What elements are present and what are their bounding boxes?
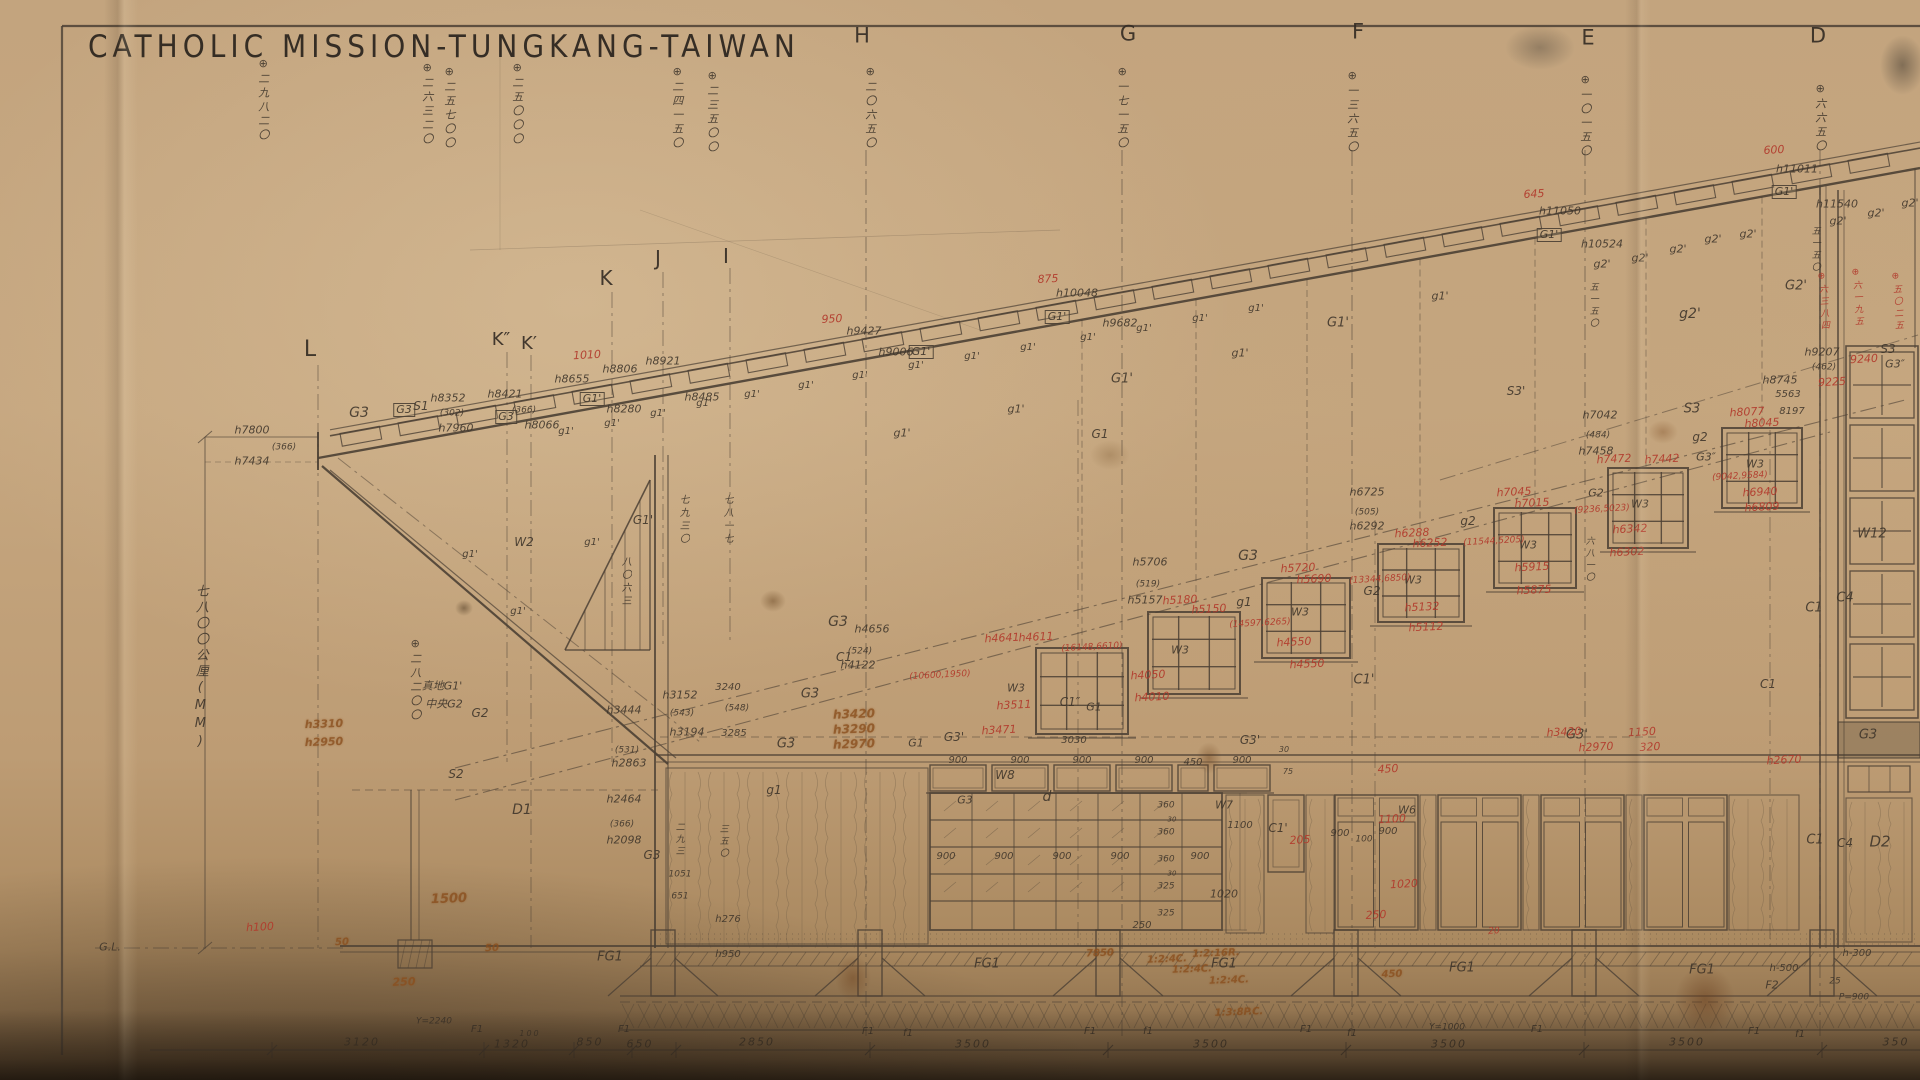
annotation-ink: h6725 [1350,487,1385,498]
annotation-ink: G3 [349,406,369,420]
annotation-ink: 75 [1283,768,1293,776]
annotation-ink: C1' [1354,674,1375,687]
annotation-red: 1150 [1628,726,1657,738]
annotation-ink: Y=1000 [1429,1024,1465,1033]
annotation-ink: h5157 [1128,595,1163,606]
annotation-ink: g1' [604,419,619,429]
annotation-red: h6809 [1744,501,1779,514]
annotation-ink: S3 [1684,403,1701,416]
annotation-ink: G1 [1086,702,1102,713]
annotation-brown: 1500 [431,892,468,906]
annotation-ink: h950 [715,950,740,960]
annotation-ink: h-500 [1769,964,1798,974]
annotation-red: 1020 [1390,878,1419,890]
annotation-ink: h11050 [1539,206,1581,217]
annotation-dim: 3500 [1193,1039,1229,1050]
annotation-ink: (462) [1812,364,1836,373]
annotation-ink: h8421 [488,389,523,400]
annotation-ink: D2 [1869,835,1890,850]
annotation-brown: 50 [485,944,499,954]
annotation-ink: C4 [1837,837,1853,849]
annotation-ink: h2098 [607,835,642,846]
annotation-ink: FG1 [597,951,623,964]
annotation-red: h6302 [1609,546,1644,559]
annotation-ink: ⊕二五七〇〇 [443,65,455,151]
annotation-ink: g2 [1692,431,1707,443]
annotation-ink: h9006 [879,347,914,358]
annotation-ink: 900 [1110,852,1129,862]
annotation-ink: g1' [650,409,665,419]
annotation-ink: h-300 [1842,949,1871,959]
annotation-ink: G1' [1327,317,1349,330]
annotation-ink: 360 [1157,856,1174,865]
annotation-ink: C1 [1806,834,1823,847]
annotation-ink: 900 [1232,756,1251,766]
annotation-dim: 650 [627,1039,654,1050]
annotation-ink: (366) [512,407,536,416]
annotation-ink: g1' [510,607,525,617]
annotation-ink: h10048 [1056,288,1098,299]
annotation-red: 875 [1037,273,1059,285]
annotation-ink: W8 [995,769,1015,781]
annotation-ink: G3' [1240,734,1260,746]
annotation-ink: g1' [1020,343,1035,353]
annotation-ink: (519) [1136,581,1160,590]
annotation-letter: K [599,268,612,288]
annotation-ink: W2 [514,536,534,548]
annotation-ink: g1' [462,550,477,560]
annotation-ink: h3444 [607,705,642,716]
annotation-ink: 450 [1183,758,1202,768]
annotation-ink: g1 [1236,596,1251,608]
annotation-ink: G1 [908,738,924,749]
drawing-title: CATHOLIC MISSION-TUNGKANG-TAIWAN [88,28,800,65]
annotation-ink: ⊕六六五〇 [1814,82,1826,154]
annotation-letter: G [1120,24,1136,45]
annotation-ink: g2' [1704,234,1721,245]
annotation-ink: h4656 [855,624,890,635]
annotation-red: 1010 [573,349,602,361]
annotation-red: h4641 [984,632,1019,645]
annotation-ink: 七八一七 [721,494,732,546]
annotation-ink: h8921 [646,356,681,367]
annotation-ink: g1' [908,361,923,371]
annotation-ink: G1' [1111,373,1133,386]
annotation-brown: 1:2:4C. [1209,975,1249,986]
annotation-red: 600 [1763,144,1785,156]
annotation-ink: 8197 [1779,407,1804,417]
annotation-red: 950 [821,313,843,325]
annotation-ink: Y=2240 [416,1018,452,1027]
annotation-ink: 325 [1157,883,1174,892]
annotation-red: h4010 [1134,691,1169,704]
annotation-ink: ⊕二九八二〇 [257,57,269,143]
annotation-ink: G2 [1364,585,1381,597]
annotation-box: G1' [1537,228,1562,242]
annotation-red: 645 [1523,188,1545,200]
annotation-ink: h3194 [670,727,705,738]
annotation-ink: h6292 [1350,521,1385,532]
annotation-red: h3471 [981,724,1016,737]
annotation-dim: 3500 [1431,1039,1467,1050]
annotation-ink: C1 [836,651,852,663]
annotation-brown: 7850 [1086,949,1114,960]
annotation-ink: G3 [1238,549,1258,563]
annotation-ink: ⊕二〇六五〇 [864,65,876,151]
annotation-ink: C4 [1836,592,1853,605]
annotation-ink: 30 [1168,817,1177,824]
annotation-ink: ⊕二四一五〇 [671,65,683,151]
annotation-red: h5132 [1404,601,1439,614]
annotation-red: h6252 [1412,537,1447,550]
annotation-ink: G3″ [1696,452,1716,463]
annotation-ink: G1 [1092,428,1109,440]
annotation-ink: g2' [1669,244,1686,255]
annotation-ink: h8655 [555,374,590,385]
annotation-ink: C1 [1760,678,1776,690]
annotation-ink: h276 [715,915,740,925]
annotation-ink: g1' [964,352,979,362]
annotation-ink: G1' [633,514,653,526]
annotation-ink: 中央G2 [425,699,463,710]
annotation-ink: g1 [766,784,781,796]
annotation-ink: S1 [413,400,428,412]
annotation-dim: 3500 [1669,1037,1705,1048]
annotation-ink: 360 [1157,829,1174,838]
annotation-ink: FG1 [1211,958,1237,971]
annotation-ink: 900 [1134,756,1153,766]
annotation-ink: G2 [472,707,489,719]
annotation-ink: h7042 [1583,410,1618,421]
annotation-red: h4550 [1289,658,1324,671]
annotation-ink: g2' [1901,198,1918,209]
annotation-red: h6940 [1742,486,1777,499]
annotation-ink: F1 [1084,1027,1096,1037]
annotation-ink: g1' [1080,333,1095,343]
annotation-ink: g2' [1867,208,1884,219]
annotation-ink: g2 [1460,515,1475,527]
annotation-ink: 3240 [715,683,740,693]
annotation-ink: F2 [1765,980,1778,991]
annotation-ink: 3285 [721,729,746,739]
annotation-red: 9225 [1818,376,1847,388]
annotation-red: h100 [246,921,275,933]
annotation-ink: F1 [1531,1025,1543,1035]
annotation-red: h5150 [1191,603,1226,616]
annotation-red: h4611 [1018,631,1053,644]
annotation-dim: 1320 [494,1039,530,1050]
annotation-ink: g2' [1829,216,1846,227]
annotation-ink: g2' [1631,253,1648,264]
annotation-ink: 七八〇〇公厘(MM) [193,584,207,752]
annotation-ink: W3 [1171,645,1189,656]
annotation-letter: D [1810,26,1826,47]
annotation-ink: f1 [903,1029,913,1039]
annotation-ink: f1 [1795,1030,1805,1040]
annotation-letter: L [304,339,316,361]
annotation-ink: G2 [1588,488,1604,499]
annotation-ink: h3152 [663,690,698,701]
annotation-ink: g1' [1136,324,1151,334]
annotation-ink: G3″ [1885,359,1905,370]
annotation-ink: G3 [644,849,661,861]
annotation-ink: 651 [671,893,688,902]
annotation-ink: 1051 [669,871,692,880]
annotation-ink: h9207 [1805,347,1840,358]
annotation-ink: d [1043,790,1052,804]
annotation-brown: h2970 [833,737,875,750]
annotation-ink: F1 [471,1025,483,1035]
annotation-ink: g1' [1007,404,1024,415]
annotation-letter: I [723,246,729,266]
annotation-ink: (302) [440,410,464,419]
annotation-ink: W3 [1631,499,1649,510]
annotation-ink: 250 [1132,921,1151,931]
annotation-ink: G2' [1785,280,1807,293]
annotation-ink: h2863 [612,758,647,769]
annotation-box: G1' [1772,185,1797,199]
annotation-ink: FG1 [1689,964,1715,977]
annotation-ink: ⊕二三五〇〇 [706,69,718,155]
annotation-ink: 25 [1829,978,1840,987]
annotation-ink: g2' [1739,229,1756,240]
annotation-ink: 二九三 [673,822,682,858]
annotation-ink: G3' [944,731,964,743]
annotation-ink: g1' [1231,348,1248,359]
annotation-ink: 五一五〇 [1809,226,1818,274]
annotation-ink: 五一五〇 [1587,282,1596,330]
annotation-brown: h3290 [833,722,875,735]
annotation-red: 320 [1639,741,1661,753]
annotation-ink: FG1 [1449,962,1475,975]
annotation-ink: ⊕二八二〇〇 [409,637,421,723]
annotation-red: h6342 [1612,523,1647,536]
annotation-red: 20 [1488,927,1500,937]
annotation-ink: ⊕一三六五〇 [1346,69,1358,155]
annotation-ink: h9682 [1103,318,1138,329]
annotation-ink: (366) [610,821,634,830]
annotation-ink: 30 [1168,871,1177,878]
annotation-red: h7442 [1644,453,1679,466]
annotation-letter: K′ [521,335,537,353]
annotation-ink: C1' [1268,822,1287,834]
annotation-dim: 3500 [955,1039,991,1050]
annotation-brown: h3420 [833,707,875,720]
annotation-ink: g1' [1248,304,1263,314]
annotation-ink: 900 [1378,827,1397,837]
annotation-ink: S3 [1880,343,1895,355]
annotation-brown: 250 [392,976,415,988]
annotation-ink: F1 [862,1027,874,1037]
annotation-ink: D1 [512,803,532,817]
annotation-ink: g1' [584,538,599,548]
annotation-red: 1100 [1378,813,1407,825]
annotation-red: h4050 [1130,669,1165,682]
annotation-dim: 850 [577,1037,604,1048]
annotation-ink: 900 [994,852,1013,862]
blueprint-sheet: CATHOLIC MISSION-TUNGKANG-TAIWAN HGFEDKJ… [0,0,1920,1080]
annotation-ink: 30 [1279,746,1289,754]
annotation-red: h5690 [1296,573,1331,586]
annotation-brown: 50 [335,938,349,948]
annotation-ink: ⊕一七一五〇 [1116,65,1128,151]
annotation-ink: g2' [1593,259,1610,270]
annotation-ink: W3 [1007,683,1025,694]
annotation-ink: (484) [1586,432,1610,441]
annotation-letter: J [655,248,661,268]
annotation-ink: ⊕二五〇〇〇 [511,61,523,147]
annotation-ink: F1 [1300,1025,1312,1035]
annotation-ink: ⊕一〇一五〇 [1579,73,1591,159]
annotation-ink: G3 [828,615,848,629]
drawing-linework [0,0,1920,1080]
annotation-ink: g1' [1431,291,1448,302]
annotation-ink: 900 [1072,756,1091,766]
annotation-ink: h8352 [431,393,466,404]
annotation-ink: g1' [744,390,759,400]
annotation-brown: h2950 [305,736,344,748]
annotation-ink: h8280 [607,404,642,415]
annotation-ink: h10524 [1581,239,1623,250]
annotation-red: h2670 [1766,754,1801,767]
annotation-ink: (548) [725,705,749,714]
annotation-ink: h11011 [1776,164,1818,175]
annotation-ink: C1″ [1060,696,1081,708]
annotation-ink: G.L. [99,942,121,953]
annotation-ink: F1 [618,1025,630,1035]
annotation-ink: f1 [1143,1027,1153,1037]
annotation-ink: h11540 [1816,199,1858,210]
annotation-brown: 450 [1381,970,1402,981]
annotation-ink: 900 [936,852,955,862]
annotation-ink: W3 [1291,607,1309,618]
annotation-brown: 1:3:8P.C. [1215,1007,1264,1019]
annotation-red: h3420 [1546,726,1581,739]
annotation-ink: (531) [615,747,639,756]
annotation-ink: 七九三〇 [677,494,688,546]
annotation-ink: 3030 [1061,736,1086,746]
annotation-ink: W3 [1746,459,1764,470]
annotation-ink: h8745 [1763,375,1798,386]
annotation-ink: W7 [1215,800,1233,811]
annotation-dim: 2850 [739,1037,775,1048]
annotation-ink: W12 [1857,528,1886,541]
annotation-red: 450 [1377,763,1399,775]
annotation-ink: C1 [1805,602,1822,615]
annotation-ink: g1' [558,427,573,437]
annotation-ink: h8806 [603,364,638,375]
annotation-ink: ⊕二六三二〇 [421,61,433,147]
annotation-ink: 900 [1052,852,1071,862]
annotation-ink: FG1 [974,958,1000,971]
annotation-ink: 325 [1157,910,1174,919]
annotation-ink: h9427 [847,326,882,337]
annotation-ink: 1020 [1210,889,1238,900]
annotation-ink: (505) [1355,509,1379,518]
annotation-red: 9240 [1850,353,1879,365]
annotation-red: 205 [1289,834,1311,846]
annotation-ink: 900 [1330,829,1349,839]
annotation-ink: h7800 [235,425,270,436]
annotation-ink: 900 [1010,756,1029,766]
annotation-letter: H [854,26,870,47]
annotation-box: G1' [580,392,605,406]
annotation-letter: F [1352,22,1364,43]
annotation-letter: E [1581,28,1594,49]
annotation-ink: h5706 [1133,557,1168,568]
annotation-box: G3 [393,403,415,417]
annotation-ink: 六八一〇 [1583,536,1592,584]
annotation-ink: 三五〇 [717,824,726,860]
annotation-red: h3511 [996,699,1031,712]
annotation-ink: g1' [696,399,711,409]
annotation-ink: g2' [1679,307,1701,321]
annotation-brown: h3310 [305,718,344,730]
annotation-red: h5112 [1408,621,1443,634]
annotation-red: h4550 [1276,636,1311,649]
annotation-ink: h2464 [607,794,642,805]
annotation-letter: K″ [492,331,511,349]
annotation-ink: 900 [948,756,967,766]
annotation-ink: S2 [448,768,463,780]
annotation-ink: 360 [1157,802,1174,811]
annotation-ink: 八〇六三 [619,556,630,608]
annotation-ink: f1 [1347,1029,1357,1039]
annotation-ink: h7960 [439,423,474,434]
annotation-ink: F1 [1748,1027,1760,1037]
annotation-ink: 5563 [1775,390,1800,400]
annotation-ink: G3 [1859,729,1877,742]
annotation-ink: g1' [1192,314,1207,324]
annotation-ink: h8066 [525,420,560,431]
annotation-ink: g1' [852,371,867,381]
annotation-ink: 100 [1355,836,1372,845]
annotation-ink: (543) [670,710,694,719]
annotation-box: G1' [1045,310,1070,324]
annotation-red: 250 [1365,909,1387,921]
annotation-red: h7015 [1514,497,1549,510]
annotation-red: h5875 [1516,584,1551,597]
annotation-ink: G3 [801,688,819,701]
annotation-ink: g1' [893,428,910,439]
annotation-red: h5915 [1514,561,1549,574]
annotation-ink: G3 [777,738,795,751]
annotation-red: h8045 [1744,417,1779,430]
annotation-red: h7472 [1596,453,1631,466]
annotation-ink: G3 [957,795,973,806]
annotation-ink: P=900 [1839,994,1869,1003]
annotation-ink: h7434 [235,456,270,467]
annotation-ink: 900 [1190,852,1209,862]
annotation-ink: S3' [1507,385,1526,397]
annotation-ink: 真地G1' [422,681,463,692]
annotation-dim: 350 [1883,1037,1910,1048]
annotation-dim: 3120 [344,1037,380,1048]
annotation-brown: 1:2:4C. [1172,964,1212,975]
annotation-red: h2970 [1578,741,1613,754]
annotation-ink: g1' [798,381,813,391]
annotation-ink: (366) [272,444,296,453]
annotation-ink: 1100 [1227,821,1252,831]
annotation-brown: 1:2:16R. [1192,948,1240,960]
